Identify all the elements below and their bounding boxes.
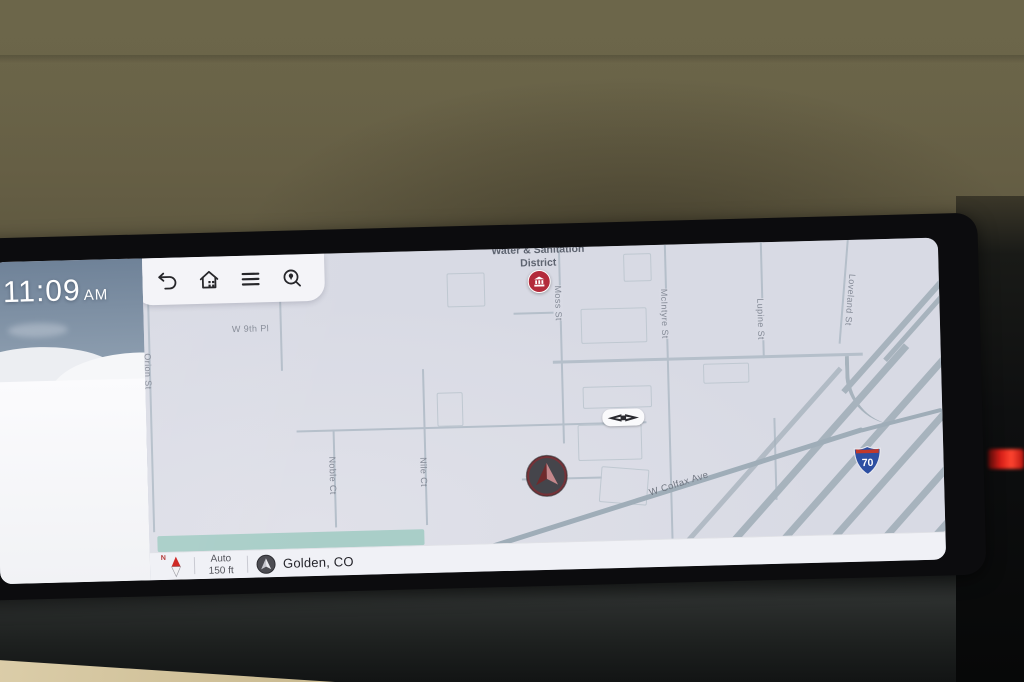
parcel [623, 253, 652, 282]
divider [194, 557, 195, 574]
search-button[interactable] [277, 263, 308, 294]
parcel [437, 392, 464, 427]
poi-marker[interactable] [527, 270, 551, 294]
road-segment [146, 274, 155, 532]
car-display: 11:09 AM [0, 213, 987, 602]
search-icon [279, 265, 305, 291]
parcel [580, 307, 647, 344]
street-label: Noble Ct [327, 456, 338, 494]
screen: 11:09 AM [0, 238, 946, 585]
back-icon [154, 268, 180, 294]
clock-meridiem: AM [84, 286, 109, 304]
current-location-marker[interactable] [524, 453, 569, 503]
compass-button[interactable]: N [160, 554, 187, 579]
cloud-decor [8, 322, 68, 338]
home-icon [196, 267, 222, 293]
infotainment-scene: 11:09 AM [0, 0, 1024, 682]
street-label: Moss St [553, 285, 564, 321]
clock: 11:09 AM [2, 273, 108, 310]
zoom-scale-control[interactable]: Auto 150 ft [203, 552, 240, 577]
road-segment [558, 247, 565, 443]
compass-needle-icon [170, 555, 183, 577]
parcel [703, 363, 750, 384]
zoom-mode-label: Auto [203, 552, 239, 565]
street-label: Lupine St [755, 298, 766, 340]
vehicle-badge-marker[interactable] [602, 408, 644, 426]
compass-north-label: N [161, 554, 166, 561]
location-name: Golden, CO [283, 554, 354, 571]
road-segment [422, 369, 428, 525]
shield-number: 70 [862, 457, 874, 469]
road-segment [279, 301, 283, 371]
snow-field [0, 378, 150, 584]
road-segment [553, 353, 863, 364]
parcel [583, 385, 653, 409]
map-scale-label: 150 ft [203, 564, 239, 577]
genesis-wings-icon [606, 411, 640, 424]
highway-ramp [845, 355, 901, 426]
highway-lane [883, 246, 946, 362]
location-arrow-icon [524, 453, 569, 498]
poi-label: Water & Sanitation District [456, 242, 621, 271]
menu-button[interactable] [235, 264, 266, 295]
wall-seam [0, 55, 1024, 67]
street-label: Nile Ct [418, 457, 429, 487]
current-location-chip[interactable]: Golden, CO [256, 551, 354, 574]
street-label: McIntyre St [659, 289, 670, 339]
back-button[interactable] [152, 266, 183, 297]
street-label: W Colfax Ave [648, 469, 710, 498]
location-icon [256, 554, 277, 575]
map-toolbar [142, 254, 325, 306]
street-label: W 9th Pl [232, 323, 269, 334]
navigation-map[interactable]: Orion St W 9th Pl Noble Ct Nile Ct Moss … [142, 238, 946, 581]
menu-icon [238, 266, 264, 292]
parcel [578, 423, 643, 461]
home-button[interactable] [193, 265, 224, 296]
ambient-red-light [988, 449, 1024, 469]
parcel [446, 272, 485, 307]
government-building-icon [534, 276, 545, 287]
clock-time: 11:09 [2, 274, 81, 310]
landscape-widget[interactable]: 11:09 AM [0, 258, 150, 584]
interstate-70-shield: 70 [853, 445, 882, 481]
divider [247, 556, 248, 573]
